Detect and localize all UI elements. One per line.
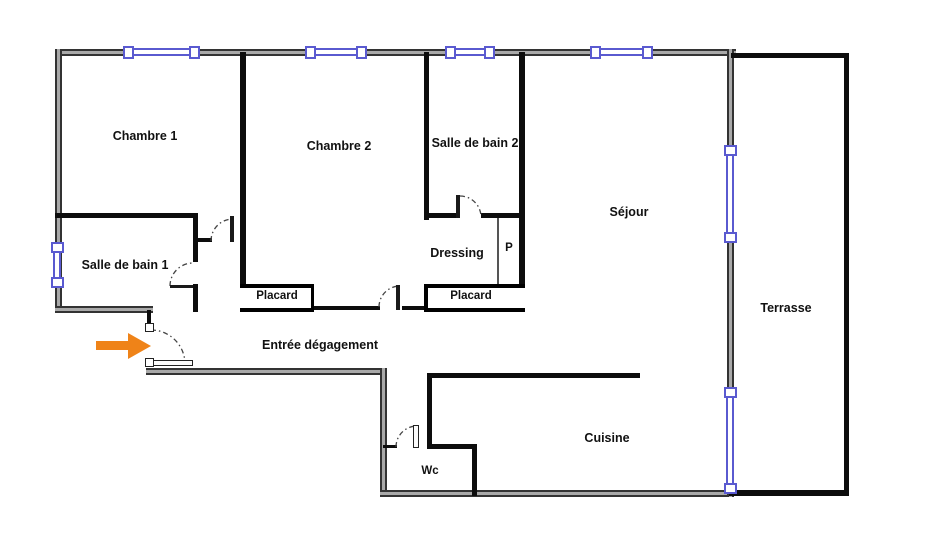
room-label-sejour: Séjour bbox=[610, 205, 649, 219]
entrance-arrow-icon bbox=[128, 333, 151, 359]
door-leaf-sdb1 bbox=[170, 285, 193, 288]
door-swing-arc-entrance bbox=[151, 330, 185, 364]
wall-exterior-hall-bottom bbox=[146, 368, 386, 375]
door-leaf-wc bbox=[413, 425, 419, 448]
window-end-cap bbox=[123, 46, 134, 59]
window-sejour-top bbox=[593, 48, 650, 56]
door-leaf-entrance bbox=[150, 360, 193, 366]
door-leaf-sdb2 bbox=[456, 195, 460, 218]
room-label-sdb2: Salle de bain 2 bbox=[432, 136, 519, 150]
wall-exterior-wc-left bbox=[380, 368, 387, 497]
wall-chambre1-door bbox=[193, 238, 212, 242]
wall-sdb1-top bbox=[55, 213, 198, 218]
room-label-chambre1: Chambre 1 bbox=[113, 129, 178, 143]
door-swing-arc-sdb2 bbox=[460, 196, 481, 217]
window-end-cap bbox=[590, 46, 601, 59]
window-chambre1 bbox=[126, 48, 197, 56]
window-sdb1 bbox=[53, 245, 61, 285]
wall-terrasse-right bbox=[844, 53, 849, 496]
window-end-cap bbox=[642, 46, 653, 59]
window-end-cap bbox=[51, 242, 64, 253]
room-label-chambre2: Chambre 2 bbox=[307, 139, 372, 153]
wall-sdb2-bottom-left bbox=[424, 213, 458, 218]
entrance-arrow-body bbox=[96, 341, 129, 350]
wall-hall-top-left bbox=[312, 306, 380, 310]
wall-terrasse-top bbox=[731, 53, 849, 58]
wall-wc-top bbox=[427, 444, 477, 449]
window-sejour-terrasse-lower bbox=[726, 390, 734, 491]
window-end-cap bbox=[724, 145, 737, 156]
window-end-cap bbox=[356, 46, 367, 59]
wall-wc-right bbox=[472, 444, 477, 496]
room-label-sdb1: Salle de bain 1 bbox=[82, 258, 169, 272]
window-end-cap bbox=[445, 46, 456, 59]
room-label-dressing: Dressing bbox=[430, 246, 484, 260]
window-sejour-terrasse-upper bbox=[726, 148, 734, 240]
window-end-cap bbox=[724, 232, 737, 243]
room-label-entree: Entrée dégagement bbox=[262, 338, 378, 352]
divider-dressing-p bbox=[497, 218, 499, 284]
wall-terrasse-bottom bbox=[729, 490, 849, 496]
room-label-placard-right: Placard bbox=[450, 290, 492, 302]
floor-plan: Chambre 1 Chambre 2 Salle de bain 2 Séjo… bbox=[0, 0, 933, 535]
door-hinge-entrance-top bbox=[145, 323, 154, 332]
window-end-cap bbox=[305, 46, 316, 59]
door-leaf-chambre1 bbox=[230, 216, 234, 242]
window-end-cap bbox=[724, 387, 737, 398]
window-end-cap bbox=[484, 46, 495, 59]
window-end-cap bbox=[724, 483, 737, 494]
room-label-placard-left: Placard bbox=[256, 290, 298, 302]
wall-sdb1-right-lower bbox=[193, 284, 198, 312]
door-leaf-dressing bbox=[396, 285, 400, 310]
wall-cuisine-top bbox=[427, 373, 640, 378]
window-sdb2 bbox=[448, 48, 492, 56]
wall-chambre2-left bbox=[240, 52, 246, 312]
wall-exterior-cuisine-bottom bbox=[380, 490, 734, 497]
wall-exterior-sdb1-bottom bbox=[55, 306, 153, 313]
room-label-cuisine: Cuisine bbox=[584, 431, 629, 445]
room-label-p: P bbox=[505, 242, 513, 254]
wall-sdb2-right bbox=[519, 52, 525, 312]
room-label-terrasse: Terrasse bbox=[760, 301, 811, 315]
wall-sdb2-left bbox=[424, 52, 429, 220]
door-swing-arc-sdb1 bbox=[170, 263, 193, 286]
window-end-cap bbox=[189, 46, 200, 59]
wall-cuisine-left bbox=[427, 373, 432, 448]
room-label-wc: Wc bbox=[421, 465, 438, 477]
wall-wc-top-left bbox=[383, 445, 397, 448]
window-end-cap bbox=[51, 277, 64, 288]
window-chambre2 bbox=[308, 48, 364, 56]
door-hinge-entrance-bottom bbox=[145, 358, 154, 367]
